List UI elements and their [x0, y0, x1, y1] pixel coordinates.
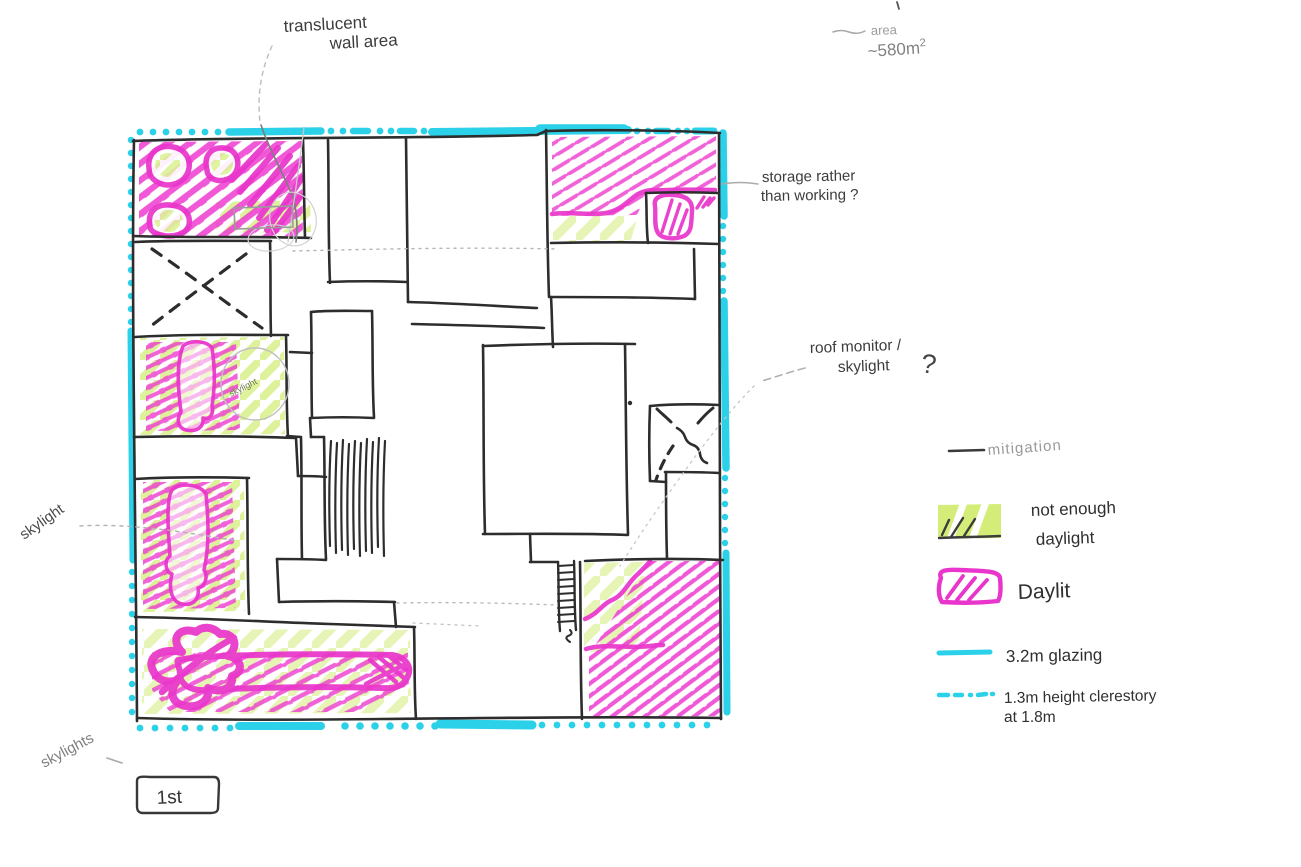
svg-text:storage rather: storage rather [762, 167, 856, 186]
svg-text:at 1.8m: at 1.8m [1004, 709, 1056, 726]
svg-text:skylight: skylight [838, 357, 891, 376]
svg-text:1st: 1st [156, 787, 183, 809]
svg-text:~580m2: ~580m2 [867, 37, 927, 61]
svg-text:area: area [871, 22, 898, 38]
svg-text:wall area: wall area [328, 30, 398, 53]
svg-text:1.3m height clerestory: 1.3m height clerestory [1004, 687, 1157, 707]
svg-text:roof monitor /: roof monitor / [810, 337, 903, 357]
svg-text:Daylit: Daylit [1017, 579, 1070, 604]
svg-text:not enough: not enough [1030, 498, 1116, 520]
svg-text:than working ?: than working ? [761, 186, 859, 205]
svg-text:daylight: daylight [1035, 528, 1094, 549]
svg-text:3.2m glazing: 3.2m glazing [1006, 645, 1103, 666]
